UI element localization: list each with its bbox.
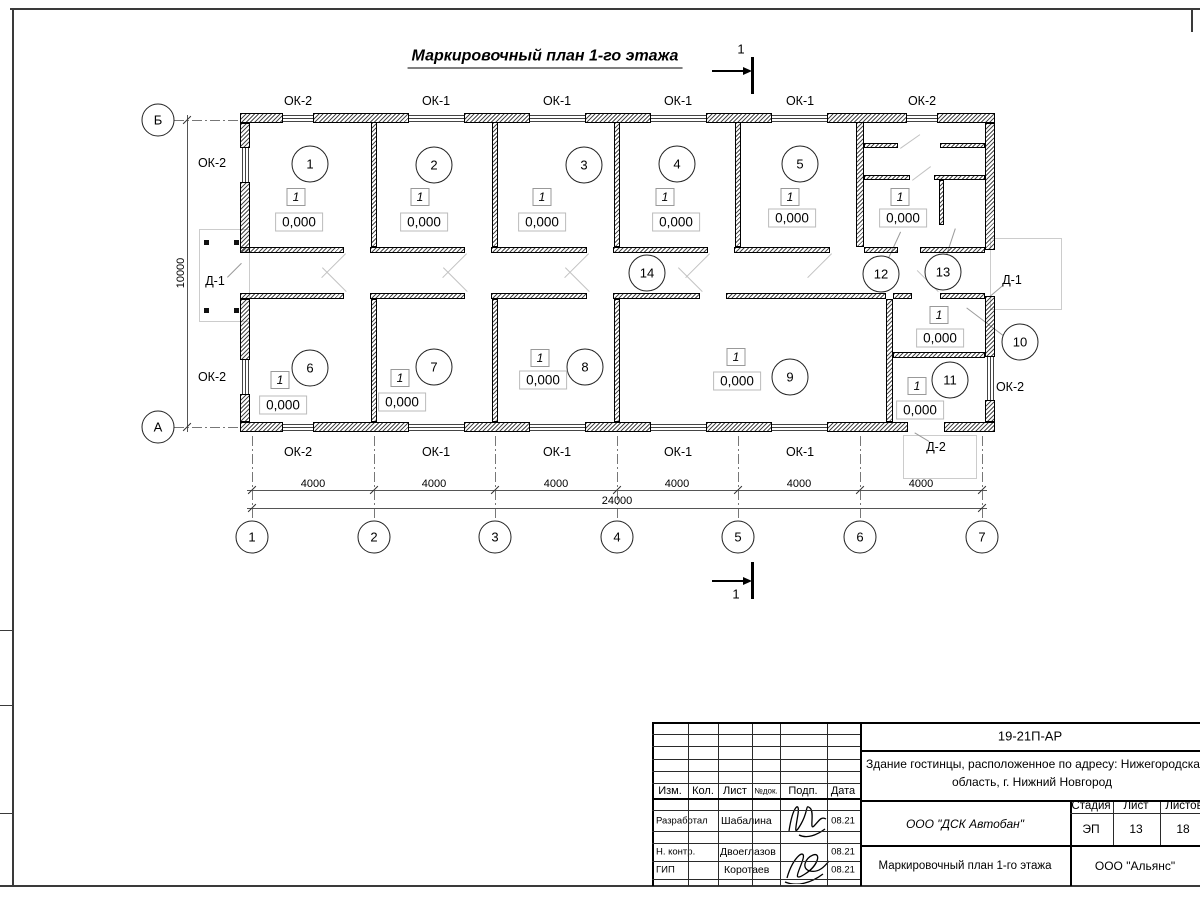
titleblock-line [652,771,860,772]
wall-segment [614,299,620,422]
elevation-mark: 0,000 [378,393,426,412]
wall-segment [893,293,912,299]
wall-segment [313,422,409,432]
door-swing-line [442,253,467,278]
tb-sheet-header: Лист [1124,800,1149,812]
unit-flag: 1 [533,188,552,206]
titleblock-line [652,879,860,880]
tb-col-data: Дата [831,785,855,797]
window-type-label: ОК-2 [908,94,936,108]
porch-post [204,308,209,313]
signature-developer [783,797,829,839]
wall-segment [240,394,250,422]
wall-segment [371,299,377,422]
titleblock-line [652,861,860,862]
window-glazing [772,424,827,431]
wall-segment [864,143,898,148]
window-glazing [772,115,827,122]
wall-segment [734,247,830,253]
titleblock-line [652,843,860,844]
wall-segment [491,247,587,253]
titleblock-line [860,800,1200,802]
tb-name-developer: Шабалина [721,815,772,827]
dimension-line [187,115,188,432]
axis-bubble: 5 [722,521,755,554]
window-glazing [530,424,585,431]
porch-post [204,240,209,245]
tb-col-izm: Изм. [658,785,682,797]
room-number-circle: 2 [416,147,453,184]
room-number-circle: 10 [1002,324,1039,361]
titleblock-line [1113,800,1114,845]
wall-segment [920,247,985,253]
titleblock-line [652,759,860,760]
elevation-mark: 0,000 [652,213,700,232]
wall-segment [985,123,995,250]
window-type-label: ОК-1 [543,94,571,108]
elevation-mark: 0,000 [768,209,816,228]
unit-flag: 1 [930,306,949,324]
tb-col-ndok: №док. [754,787,777,796]
tb-name-gip: Коротаев [724,864,769,876]
dimension-label: 4000 [787,478,811,490]
room-number-circle: 12 [863,256,900,293]
wall-segment [240,123,250,148]
wall-segment [827,113,907,123]
window-type-label: ОК-1 [664,445,692,459]
window-type-label: ОК-1 [786,445,814,459]
tb-doc-code: 19-21П-АР [998,729,1062,744]
window-type-label: ОК-1 [664,94,692,108]
wall-segment [464,422,530,432]
axis-bubble: А [142,411,175,444]
window-glazing [283,424,313,431]
wall-segment [939,180,944,225]
wall-segment [864,247,898,253]
porch-post [234,308,239,313]
room-number-circle: 7 [416,349,453,386]
tb-stage-value: ЭП [1082,822,1099,836]
wall-segment [585,422,651,432]
room-number-circle: 11 [932,362,969,399]
wall-segment [240,293,344,299]
dimension-label: 4000 [544,478,568,490]
elevation-mark: 0,000 [713,372,761,391]
tb-date-developer: 08.21 [831,816,855,827]
dimension-label: 4000 [665,478,689,490]
wall-segment [827,422,908,432]
wall-segment [492,299,498,422]
door-type-label: Д-1 [205,274,225,288]
unit-flag: 1 [531,349,550,367]
door-swing-line [321,253,346,278]
tb-date-ncontrol: 08.21 [831,847,855,858]
drawing-sheet: Маркировочный план 1-го этажа 1 1 ОК-2ОК… [0,0,1200,900]
door-swing-line [685,253,710,278]
elevation-mark: 0,000 [259,396,307,415]
unit-flag: 1 [391,369,410,387]
wall-segment [240,422,283,432]
elevation-mark: 0,000 [400,213,448,232]
window-glazing [409,424,464,431]
titleblock-line [652,783,860,784]
tb-col-kol: Кол. [692,785,714,797]
tb-stage-header: Стадия [1071,800,1110,812]
wall-segment [940,293,985,299]
tb-sheet-title: Маркировочный план 1-го этажа [879,860,1052,872]
dimension-label: 24000 [602,495,633,507]
unit-flag: 1 [727,348,746,366]
window-glazing [242,360,249,394]
window-type-label: ОК-1 [422,94,450,108]
porch-outline [990,238,1062,310]
wall-segment [706,422,772,432]
titleblock-line [1070,813,1200,814]
unit-flag: 1 [908,377,927,395]
wall-segment [937,113,995,123]
unit-flag: 1 [411,188,430,206]
signature-gip [779,840,831,884]
elevation-mark: 0,000 [916,329,964,348]
dimension-label-vertical: 10000 [175,258,187,289]
titleblock-line [860,845,1200,847]
room-number-circle: 13 [925,254,962,291]
wall-segment [370,247,465,253]
dimension-label: 4000 [422,478,446,490]
titleblock-line [652,746,860,747]
wall-segment [313,113,409,123]
axis-bubble: 3 [479,521,512,554]
room-number-circle: 1 [292,146,329,183]
wall-segment [371,122,377,247]
tb-firm-name: ООО "Альянс" [1095,859,1175,873]
window-type-label: ОК-1 [543,445,571,459]
tb-role-gip: ГИП [656,865,675,876]
tb-name-ncontrol: Двоеглазов [720,846,776,858]
door-type-label: Д-2 [926,440,946,454]
window-type-label: ОК-1 [786,94,814,108]
titleblock-line [652,798,860,800]
door-swing-line [807,253,832,278]
tb-sheets-header: Листов [1165,800,1200,812]
titleblock-line [652,734,860,735]
room-number-circle: 14 [629,255,666,292]
wall-segment [944,422,995,432]
door-swing-line [564,253,589,278]
tb-sheet-value: 13 [1129,822,1142,836]
window-glazing [409,115,464,122]
door-swing-line [322,267,347,292]
titleblock-line [652,722,1200,724]
room-number-circle: 9 [772,359,809,396]
door-swing-line [565,267,590,292]
elevation-mark: 0,000 [896,401,944,420]
tb-col-podp: Подп. [788,785,817,797]
elevation-mark: 0,000 [879,209,927,228]
wall-segment [886,299,893,422]
unit-flag: 1 [891,188,910,206]
wall-segment [893,352,985,358]
wall-segment [240,113,283,123]
unit-flag: 1 [656,188,675,206]
window-glazing [283,115,313,122]
axis-bubble: 2 [358,521,391,554]
elevation-mark: 0,000 [275,213,323,232]
window-glazing [242,148,249,182]
axis-bubble: Б [142,104,175,137]
tb-address-line1: Здание гостинцы, расположенное по адресу… [866,757,1200,771]
titleblock-line [860,750,1200,752]
window-type-label: ОК-2 [284,94,312,108]
wall-segment [613,247,708,253]
door-swing-line [912,166,931,181]
titleblock-line [860,722,862,886]
window-glazing [651,424,706,431]
axis-bubble: 1 [236,521,269,554]
wall-segment [726,293,886,299]
wall-segment [985,400,995,422]
unit-flag: 1 [271,371,290,389]
door-swing-line [900,134,920,149]
room-number-circle: 6 [292,350,329,387]
room-number-circle: 4 [659,146,696,183]
window-glazing [987,357,994,400]
wall-segment [940,143,985,148]
window-glazing [907,115,937,122]
tb-col-list: Лист [723,785,747,797]
wall-segment [735,122,741,247]
elevation-mark: 0,000 [519,371,567,390]
tb-date-gip: 08.21 [831,865,855,876]
wall-segment [370,293,465,299]
axis-bubble: 4 [601,521,634,554]
wall-segment [613,293,700,299]
wall-segment [491,293,587,299]
tb-sheets-value: 18 [1176,822,1189,836]
room-number-circle: 3 [566,147,603,184]
tb-address-line2: область, г. Нижний Новгород [952,775,1112,789]
wall-segment [856,122,864,247]
wall-segment [985,296,995,357]
porch-post [234,240,239,245]
window-glazing [530,115,585,122]
titleblock-line [652,831,860,832]
axis-bubble: 6 [844,521,877,554]
door-type-label: Д-1 [1002,273,1022,287]
room-number-circle: 5 [782,146,819,183]
tb-role-ncontrol: Н. контр. [656,847,695,858]
dimension-line [247,508,987,509]
unit-flag: 1 [781,188,800,206]
window-type-label: ОК-1 [422,445,450,459]
wall-segment [492,122,498,247]
tb-org-name: ООО "ДСК Автобан" [906,817,1024,831]
wall-segment [240,182,250,253]
window-type-label: ОК-2 [284,445,312,459]
wall-segment [864,175,910,180]
wall-segment [240,247,344,253]
wall-segment [614,122,620,247]
room-number-circle: 8 [567,349,604,386]
wall-segment [240,299,250,360]
leader-line [888,232,901,258]
window-type-label: ОК-2 [996,380,1024,394]
tb-role-developer: Разработал [656,816,708,827]
elevation-mark: 0,000 [518,213,566,232]
window-type-label: ОК-2 [198,370,226,384]
dimension-label: 4000 [909,478,933,490]
titleblock-line [652,810,860,811]
axis-bubble: 7 [966,521,999,554]
window-glazing [651,115,706,122]
dimension-label: 4000 [301,478,325,490]
window-type-label: ОК-2 [198,156,226,170]
unit-flag: 1 [287,188,306,206]
titleblock-line [1160,800,1161,845]
door-swing-line [443,267,468,292]
